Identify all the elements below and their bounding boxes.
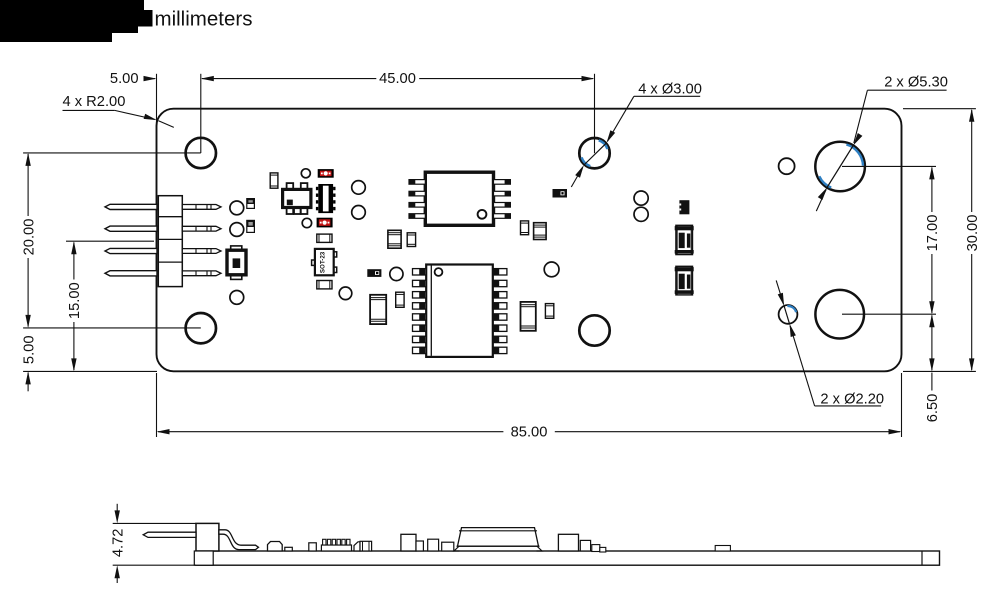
svg-text:45.00: 45.00 [379,71,416,87]
svg-text:20.00: 20.00 [21,219,37,256]
svg-text:2 x Ø2.20: 2 x Ø2.20 [820,392,884,408]
svg-text:15.00: 15.00 [67,282,83,319]
svg-text:4.72: 4.72 [110,529,126,558]
svg-text:4 x Ø3.00: 4 x Ø3.00 [638,82,702,98]
svg-text:4 x R2.00: 4 x R2.00 [63,94,126,110]
svg-text:SOT-23: SOT-23 [320,251,327,273]
svg-text:millimeters: millimeters [155,7,253,30]
svg-text:17.00: 17.00 [925,215,941,252]
svg-text:30.00: 30.00 [965,215,981,252]
svg-text:85.00: 85.00 [511,425,548,441]
svg-text:5.00: 5.00 [21,336,37,365]
svg-text:2 x Ø5.30: 2 x Ø5.30 [884,74,948,90]
svg-text:5.00: 5.00 [110,71,139,87]
svg-text:6.50: 6.50 [925,394,941,423]
